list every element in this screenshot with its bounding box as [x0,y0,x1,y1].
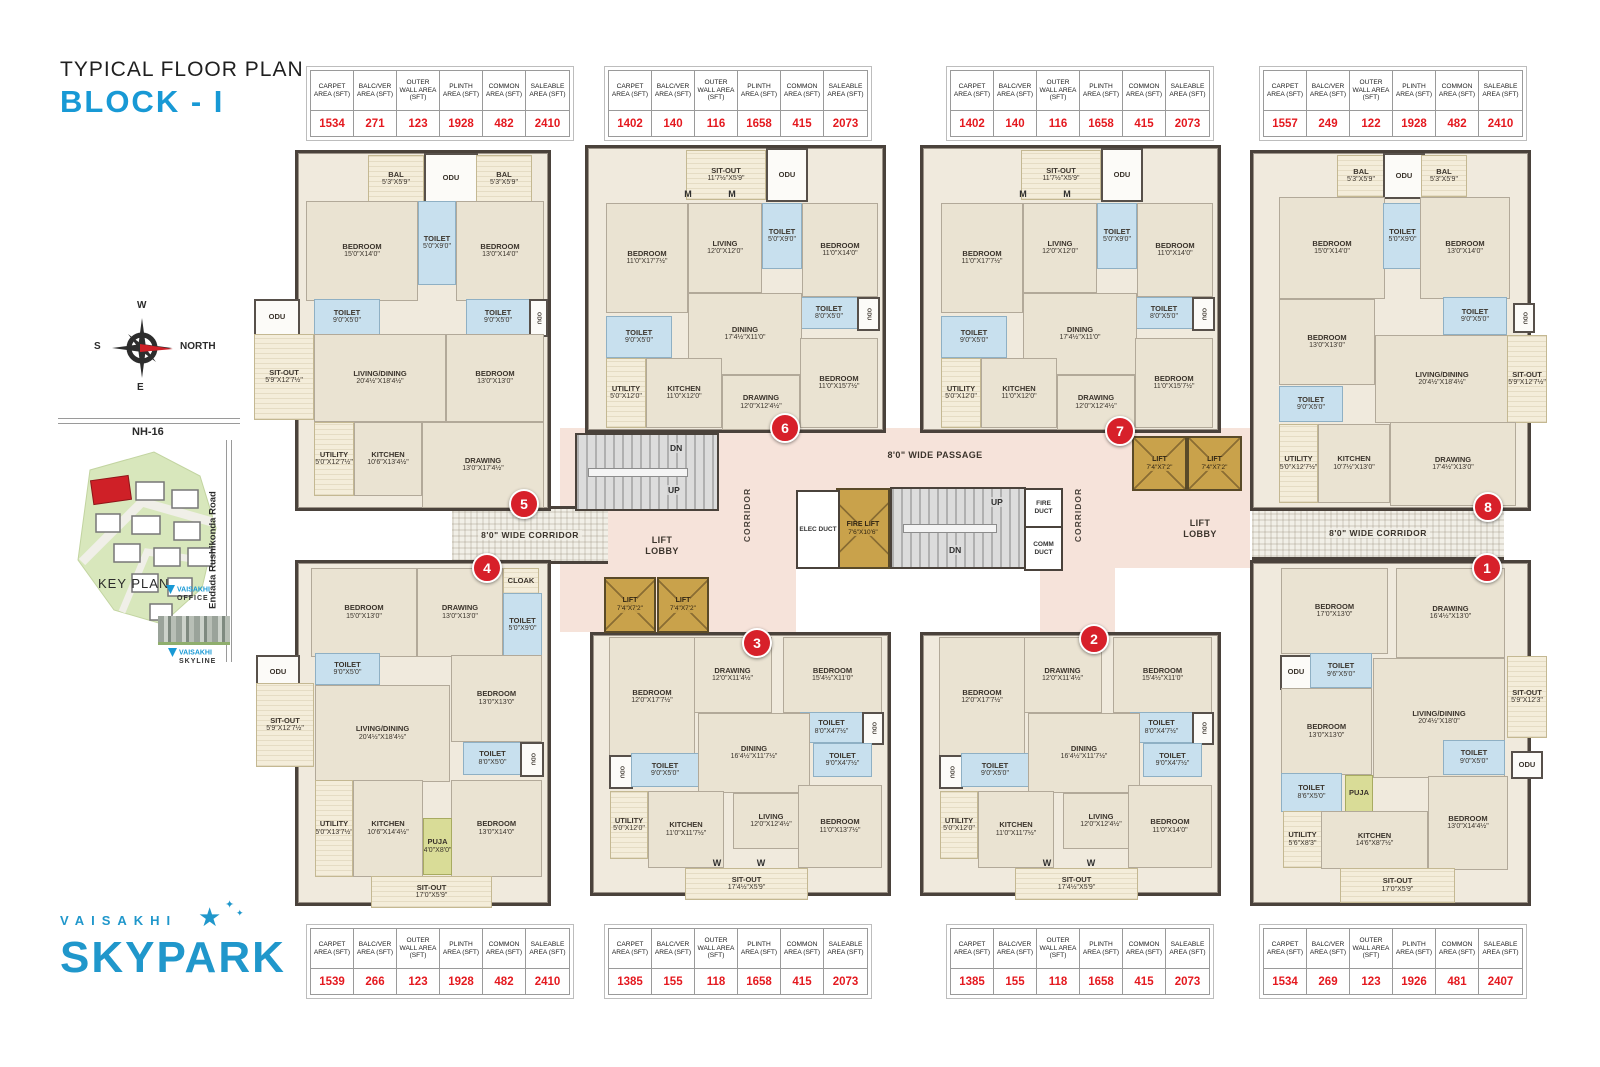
toilet-label: TOILET [1461,749,1488,758]
odu-label: ODU [1200,722,1206,734]
area-value: 123 [1350,969,1393,994]
area-value: 1928 [440,111,483,136]
kitchen: KITCHEN14'6"X8'7½" [1321,811,1428,869]
area-table-header: BALC/VER AREA (SFT) [652,929,695,969]
toilet-dims: 5'0"X9'0" [423,243,451,251]
toilet: TOILET9'0"X5'0" [1279,386,1343,422]
odu-label: ODU [618,766,624,778]
odu: ODU [1101,148,1143,202]
area-value: 1402 [951,111,994,136]
area-table-header: CARPET AREA (SFT) [609,71,652,111]
odu-label: ODU [1519,761,1536,770]
lift-lobby-right-label: LIFT LOBBY [1173,517,1227,541]
area-value: 482 [1436,111,1479,136]
sit-out-dims: 5'9"X12'7½" [265,377,303,385]
odu: ODU [1280,655,1312,690]
utility-dims: 5'6"X8'3" [1289,840,1317,848]
bedroom-label: BEDROOM [1150,818,1189,827]
bal: BAL5'3"X5'9" [368,155,424,203]
lift-4: LIFT7'4"X7'2" [1187,436,1242,491]
sit-out: SIT-OUT5'9"X12'7½" [254,334,314,420]
area-value: 116 [695,111,738,136]
bedroom-dims: 11'0"X14'0" [822,250,857,258]
toilet-dims: 9'0"X5'0" [484,317,512,325]
dining-dims: 16'4½"X11'7½" [1061,753,1108,761]
bal-label: BAL [496,171,511,180]
stair-central-dn-label: DN [948,545,962,555]
area-value: 140 [652,111,695,136]
utility-label: UTILITY [320,820,348,829]
living-dining-dims: 20'4½"X18'0" [1418,718,1460,726]
bedroom-label: BEDROOM [820,242,859,251]
unit-2: DRAWING12'0"X11'4½"BEDROOM15'4½"X11'0"BE… [920,632,1221,896]
bedroom-label: BEDROOM [1143,667,1182,676]
toilet-label: TOILET [479,750,506,759]
toilet-dims: 9'0"X5'0" [334,669,362,677]
bedroom-label: BEDROOM [962,689,1001,698]
toilet-label: TOILET [652,762,679,771]
area-value: 2073 [824,111,867,136]
toilet-label: TOILET [829,752,856,761]
area-table-header: OUTER WALL AREA (SFT) [397,929,440,969]
area-table-header: COMMON AREA (SFT) [781,71,824,111]
bal-dims: 5'3"X5'9" [382,179,410,187]
drawing-dims: 16'4½"X13'0" [1430,613,1472,621]
corridor-right: 8'0" WIDE CORRIDOR [1252,506,1504,560]
drawing-label: DRAWING [442,604,478,613]
utility-dims: 5'0"X12'0" [613,825,645,833]
toilet-dims: 9'6"X5'0" [1327,671,1355,679]
area-table-3: CARPET AREA (SFT)BALC/VER AREA (SFT)OUTE… [950,70,1210,137]
fire-lift: FIRE LIFT7'6"X10'6" [836,488,890,569]
area-table-header: PLINTH AREA (SFT) [738,929,781,969]
living-dining-label: LIVING/DINING [1415,371,1468,380]
living-dims: 12'0"X12'4½" [750,821,792,829]
sit-out-label: SIT-OUT [1512,371,1542,380]
drawing-dims: 13'0"X13'0" [442,613,478,621]
toilet-dims: 9'0"X5'0" [960,337,988,345]
corridor-left-label: 8'0" WIDE CORRIDOR [478,530,582,540]
toilet-label: TOILET [1328,662,1355,671]
bedroom-label: BEDROOM [342,243,381,252]
utility: UTILITY5'0"X13'7½" [315,780,353,877]
bal: BAL5'3"X5'9" [1337,155,1385,197]
compass-s: S [94,341,101,352]
toilet-dims: 8'0"X5'0" [815,313,843,321]
area-table-header: BALC/VER AREA (SFT) [1307,71,1350,111]
living-label: LIVING [1088,813,1113,822]
area-table-header: CARPET AREA (SFT) [311,71,354,111]
unit-number-8: 8 [1473,492,1503,522]
toilet: TOILET9'0"X5'0" [606,316,672,358]
stair-left: DNUP [575,433,719,511]
toilet-label: TOILET [1462,308,1489,317]
kitchen: KITCHEN11'0"X12'0" [981,358,1057,428]
puja-label: PUJA [1349,789,1369,798]
sit-out-label: SIT-OUT [1512,689,1542,698]
toilet-dims: 5'0"X9'0" [509,625,537,633]
area-value: 1557 [1264,111,1307,136]
bedroom: BEDROOM11'0"X15'7½" [1135,338,1213,428]
bedroom-dims: 17'0"X13'0" [1317,611,1353,619]
area-value: 271 [354,111,397,136]
unit-number-1: 1 [1472,553,1502,583]
puja-label: PUJA [427,838,447,847]
w-label: W [713,858,722,868]
bedroom-dims: 15'4½"X11'0" [812,675,853,683]
passage-label: 8'0" WIDE PASSAGE [840,448,1030,462]
sit-out: SIT-OUT17'4½"X5'9" [1015,868,1138,900]
area-value: 155 [652,969,695,994]
drawing-dims: 12'0"X12'4½" [740,403,782,411]
bedroom-dims: 12'0"X17'7½" [631,697,673,705]
utility-dims: 5'0"X12'7½" [315,459,353,467]
lift-4-label: LIFT [1207,456,1222,464]
bedroom-dims: 15'0"X14'0" [1314,248,1350,256]
living-dims: 12'0"X12'0" [1042,248,1078,256]
lift-2: LIFT7'4"X7'2" [657,577,709,633]
sit-out-dims: 17'0"X5'9" [1382,886,1414,894]
unit-number-2: 2 [1079,624,1109,654]
vaisakhi-v-icon [166,585,175,594]
living-label: LIVING [712,240,737,249]
odu: ODU [1192,712,1214,745]
odu: ODU [529,299,548,337]
stair-central-up-label: UP [990,497,1004,507]
toilet: TOILET9'0"X4'7½" [813,743,872,777]
bedroom: BEDROOM13'0"X13'0" [451,655,542,742]
bal-label: BAL [1436,168,1451,177]
toilet-label: TOILET [818,719,845,728]
toilet-label: TOILET [334,309,361,318]
unit-5: BAL5'3"X5'9"ODUBAL5'3"X5'9"BEDROOM15'0"X… [295,150,551,511]
utility-label: UTILITY [1288,831,1316,840]
lift-1-label: LIFT [623,597,638,605]
area-table-header: PLINTH AREA (SFT) [440,929,483,969]
area-table-header: SALEABLE AREA (SFT) [526,929,569,969]
area-value: 1928 [440,969,483,994]
area-value: 1658 [1080,969,1123,994]
area-value: 1926 [1393,969,1436,994]
fire-lift-dims: 7'6"X10'6" [848,529,878,536]
bedroom-dims: 11'0"X15'7½" [1154,383,1195,391]
living-dining: LIVING/DINING20'4½"X18'4½" [315,685,450,782]
bedroom: BEDROOM13'0"X14'0" [456,201,544,301]
bedroom: BEDROOM15'4½"X11'0" [783,637,882,713]
odu-label: ODU [269,313,286,322]
bedroom-dims: 15'4½"X11'0" [1142,675,1183,683]
sit-out-dims: 17'4½"X5'9" [728,884,766,892]
dining-label: DINING [732,326,758,335]
bedroom-dims: 11'0"X15'7½" [819,383,860,391]
toilet: TOILET9'6"X5'0" [1310,653,1372,688]
bedroom-label: BEDROOM [632,689,671,698]
area-value: 2410 [1479,111,1522,136]
unit-number-3: 3 [742,628,772,658]
drawing-dims: 17'4½"X13'0" [1432,464,1474,472]
lift-4-dims: 7'4"X7'2" [1202,464,1228,471]
bedroom: BEDROOM13'0"X14'0" [451,780,542,877]
living-dining-dims: 20'4½"X18'4½" [356,378,403,386]
sit-out-label: SIT-OUT [1046,167,1076,176]
toilet: TOILET9'0"X5'0" [631,753,699,787]
bedroom-label: BEDROOM [1315,603,1354,612]
living-dining-label: LIVING/DINING [1412,710,1465,719]
area-value: 118 [1037,969,1080,994]
nh16-label: NH-16 [132,426,164,438]
stair-left-rail [588,468,688,477]
area-table-header: BALC/VER AREA (SFT) [994,929,1037,969]
bedroom-label: BEDROOM [475,370,514,379]
kitchen: KITCHEN10'7½"X13'0" [1318,424,1390,503]
utility: UTILITY5'0"X12'0" [606,358,646,428]
block-title: BLOCK - I [60,84,224,120]
bedroom-dims: 13'0"X14'0" [479,829,515,837]
bedroom: BEDROOM15'4½"X11'0" [1113,637,1212,713]
kitchen-dims: 11'0"X11'7½" [666,830,706,838]
unit-7: SIT-OUT11'7½"X5'9"ODUMMBEDROOM11'0"X17'7… [920,145,1221,433]
area-value: 1385 [951,969,994,994]
living-dining: LIVING/DINING20'4½"X18'4½" [314,334,446,422]
toilet: TOILET9'0"X5'0" [314,299,380,335]
toilet-dims: 5'0"X9'0" [768,236,796,244]
odu-label: ODU [779,171,796,180]
kitchen-label: KITCHEN [1358,832,1391,841]
area-value: 415 [1123,969,1166,994]
kitchen-label: KITCHEN [667,385,700,394]
drawing-label: DRAWING [465,457,501,466]
key-plan-label: KEY PLAN [98,576,169,591]
odu: ODU [862,712,884,745]
living: LIVING12'0"X12'0" [1023,203,1097,293]
drawing-label: DRAWING [1078,394,1114,403]
area-value: 140 [994,111,1037,136]
utility: UTILITY5'6"X8'3" [1283,811,1322,868]
living-dining-label: LIVING/DINING [353,370,406,379]
corridor-vlabel-left: CORRIDOR [735,480,759,550]
area-table-header: BALC/VER AREA (SFT) [354,929,397,969]
bedroom-label: BEDROOM [627,250,666,259]
area-table-header: COMMON AREA (SFT) [781,929,824,969]
m: M [682,188,694,200]
skyline-building-image [158,616,230,645]
m-label: M [1063,189,1071,199]
m: M [1061,188,1073,200]
toilet-label: TOILET [1389,228,1416,237]
bal: BAL5'3"X5'9" [1421,155,1467,197]
bedroom: BEDROOM11'0"X14'0" [1128,785,1212,868]
utility-dims: 5'0"X12'7½" [1280,464,1318,472]
area-value: 123 [397,969,440,994]
toilet: TOILET9'0"X5'0" [315,653,380,685]
bedroom: BEDROOM11'0"X13'7½" [798,785,882,868]
dining-dims: 17'4½"X11'0" [725,334,766,342]
bedroom: BEDROOM11'0"X17'7½" [606,203,688,313]
area-table-header: BALC/VER AREA (SFT) [354,71,397,111]
bedroom-dims: 13'0"X14'0" [1447,248,1483,256]
area-value: 1539 [311,969,354,994]
bedroom: BEDROOM15'0"X13'0" [311,568,417,657]
toilet-dims: 8'0"X4'7½" [815,728,849,736]
toilet: TOILET5'0"X9'0" [418,201,456,285]
bedroom-label: BEDROOM [1154,375,1193,384]
corridor-right-label: 8'0" WIDE CORRIDOR [1326,528,1430,538]
kitchen-label: KITCHEN [1337,455,1370,464]
entry-left-floor [713,566,796,632]
area-value: 1928 [1393,111,1436,136]
toilet-label: TOILET [1298,396,1325,405]
toilet-dims: 5'0"X9'0" [1389,236,1417,244]
kitchen-dims: 10'6"X13'4½" [367,459,409,467]
area-value: 1402 [609,111,652,136]
utility-dims: 5'0"X12'0" [945,393,977,401]
toilet: TOILET8'0"X5'0" [1135,297,1193,329]
odu-label: ODU [1288,668,1305,677]
area-value: 123 [397,111,440,136]
utility-label: UTILITY [320,451,348,460]
kitchen-label: KITCHEN [371,451,404,460]
toilet-label: TOILET [769,228,796,237]
drawing-label: DRAWING [743,394,779,403]
area-table-header: PLINTH AREA (SFT) [1080,71,1123,111]
lift-1: LIFT7'4"X7'2" [604,577,656,633]
area-table-header: OUTER WALL AREA (SFT) [695,71,738,111]
vaisakhi-office-logo: VAISAKHI OFFICE [166,585,210,603]
vaisakhi-skyline-logo: VAISAKHI SKYLINE [168,648,216,666]
bedroom-label: BEDROOM [1307,723,1346,732]
area-table-header: COMMON AREA (SFT) [1123,929,1166,969]
unit-number-6: 6 [770,413,800,443]
m: M [1017,188,1029,200]
drawing: DRAWING17'4½"X13'0" [1390,422,1516,506]
drawing-label: DRAWING [1432,605,1468,614]
utility: UTILITY5'0"X12'0" [610,791,648,859]
dining-dims: 17'4½"X11'0" [1060,334,1101,342]
bedroom: BEDROOM13'0"X13'0" [1281,688,1372,775]
elec-duct: ELEC DUCT [796,490,840,569]
odu-label: ODU [1114,171,1131,180]
bedroom-dims: 15'0"X14'0" [344,251,380,259]
w-label: W [1087,858,1096,868]
corridor-vlabel-left-text: CORRIDOR [742,488,752,542]
area-table-header: SALEABLE AREA (SFT) [526,71,569,111]
sit-out-dims: 11'7½"X5'9" [1042,175,1079,183]
bedroom: BEDROOM11'0"X14'0" [1137,203,1213,297]
odu: ODU [1513,303,1535,333]
toilet-dims: 9'0"X5'0" [333,317,361,325]
fire-duct: FIRE DUCT [1024,488,1063,528]
bedroom: BEDROOM15'0"X14'0" [306,201,418,301]
stair-left-dn-label: DN [669,443,683,453]
lift-lobby-left-label: LIFT LOBBY [635,534,689,558]
sit-out-label: SIT-OUT [269,369,299,378]
w-label: W [757,858,766,868]
drawing-dims: 12'0"X11'4½" [712,675,753,683]
unit-number-4: 4 [472,553,502,583]
area-table-6: CARPET AREA (SFT)BALC/VER AREA (SFT)OUTE… [608,928,868,995]
utility: UTILITY5'0"X12'0" [940,791,978,859]
odu: ODU [939,755,963,789]
bedroom-dims: 13'0"X14'4½" [1447,823,1489,831]
odu-label: ODU [1396,172,1413,181]
odu-label: ODU [529,753,535,765]
toilet-label: TOILET [334,661,361,670]
dining-label: DINING [1071,745,1097,754]
cloak: CLOAK [503,568,539,594]
toilet-label: TOILET [1151,305,1178,314]
bal-dims: 5'3"X5'9" [490,179,518,187]
area-value: 2410 [526,111,569,136]
unit-number-7: 7 [1105,416,1135,446]
area-table-header: BALC/VER AREA (SFT) [1307,929,1350,969]
odu: ODU [1383,153,1425,199]
toilet-dims: 8'0"X4'7½" [1145,728,1179,736]
drawing-dims: 13'0"X17'4½" [462,465,504,473]
toilet: TOILET5'0"X9'0" [503,593,542,657]
area-table-header: SALEABLE AREA (SFT) [824,929,867,969]
area-table-header: PLINTH AREA (SFT) [1393,929,1436,969]
bedroom-label: BEDROOM [1445,240,1484,249]
bedroom-dims: 13'0"X13'0" [479,699,515,707]
area-value: 1658 [738,969,781,994]
sit-out-label: SIT-OUT [417,884,447,893]
bedroom-dims: 11'0"X13'7½" [820,827,861,835]
sit-out-dims: 5'9"X12'7½" [1508,379,1546,387]
toilet: TOILET8'0"X5'0" [800,297,858,329]
bedroom: BEDROOM15'0"X14'0" [1279,197,1385,299]
toilet-label: TOILET [509,617,536,626]
area-table-header: OUTER WALL AREA (SFT) [1350,71,1393,111]
area-table-header: PLINTH AREA (SFT) [1393,71,1436,111]
kitchen-dims: 10'6"X14'4½" [367,829,409,837]
toilet-dims: 9'0"X5'0" [1297,404,1325,412]
area-table-header: SALEABLE AREA (SFT) [1479,71,1522,111]
bedroom-label: BEDROOM [344,604,383,613]
area-table-header: PLINTH AREA (SFT) [1080,929,1123,969]
sit-out-label: SIT-OUT [1062,876,1092,885]
area-value: 2073 [1166,969,1209,994]
sit-out: SIT-OUT5'9"X12'7½" [1507,335,1547,423]
dining-label: DINING [1067,326,1093,335]
sit-out-label: SIT-OUT [732,876,762,885]
toilet-label: TOILET [1159,752,1186,761]
area-table-header: OUTER WALL AREA (SFT) [1037,929,1080,969]
area-table-5: CARPET AREA (SFT)BALC/VER AREA (SFT)OUTE… [310,928,570,995]
odu: ODU [520,742,544,777]
bedroom-label: BEDROOM [477,820,516,829]
area-table-header: COMMON AREA (SFT) [1123,71,1166,111]
area-table-header: OUTER WALL AREA (SFT) [1350,929,1393,969]
bedroom-label: BEDROOM [819,375,858,384]
page-title: TYPICAL FLOOR PLAN [60,58,304,82]
unit-1: BEDROOM17'0"X13'0"DRAWING16'4½"X13'0"ODU… [1250,560,1531,906]
bedroom-label: BEDROOM [962,250,1001,259]
sit-out-dims: 5'9"X12'7½" [266,725,304,733]
area-value: 1658 [1080,111,1123,136]
bal-label: BAL [1353,168,1368,177]
corridor-vlabel-right-text: CORRIDOR [1073,488,1083,542]
compass-e: E [137,382,144,393]
corridor-vlabel-right: CORRIDOR [1066,480,1090,550]
m-label: M [1019,189,1027,199]
comm-duct: COMM DUCT [1024,526,1063,571]
bedroom: BEDROOM11'0"X14'0" [802,203,878,297]
drawing-label: DRAWING [714,667,750,676]
area-table-header: COMMON AREA (SFT) [483,71,526,111]
floor-plan-page: TYPICAL FLOOR PLAN BLOCK - I CARPET AREA… [0,0,1600,1067]
bal-dims: 5'3"X5'9" [1347,176,1375,184]
toilet-dims: 9'0"X5'0" [651,770,679,778]
